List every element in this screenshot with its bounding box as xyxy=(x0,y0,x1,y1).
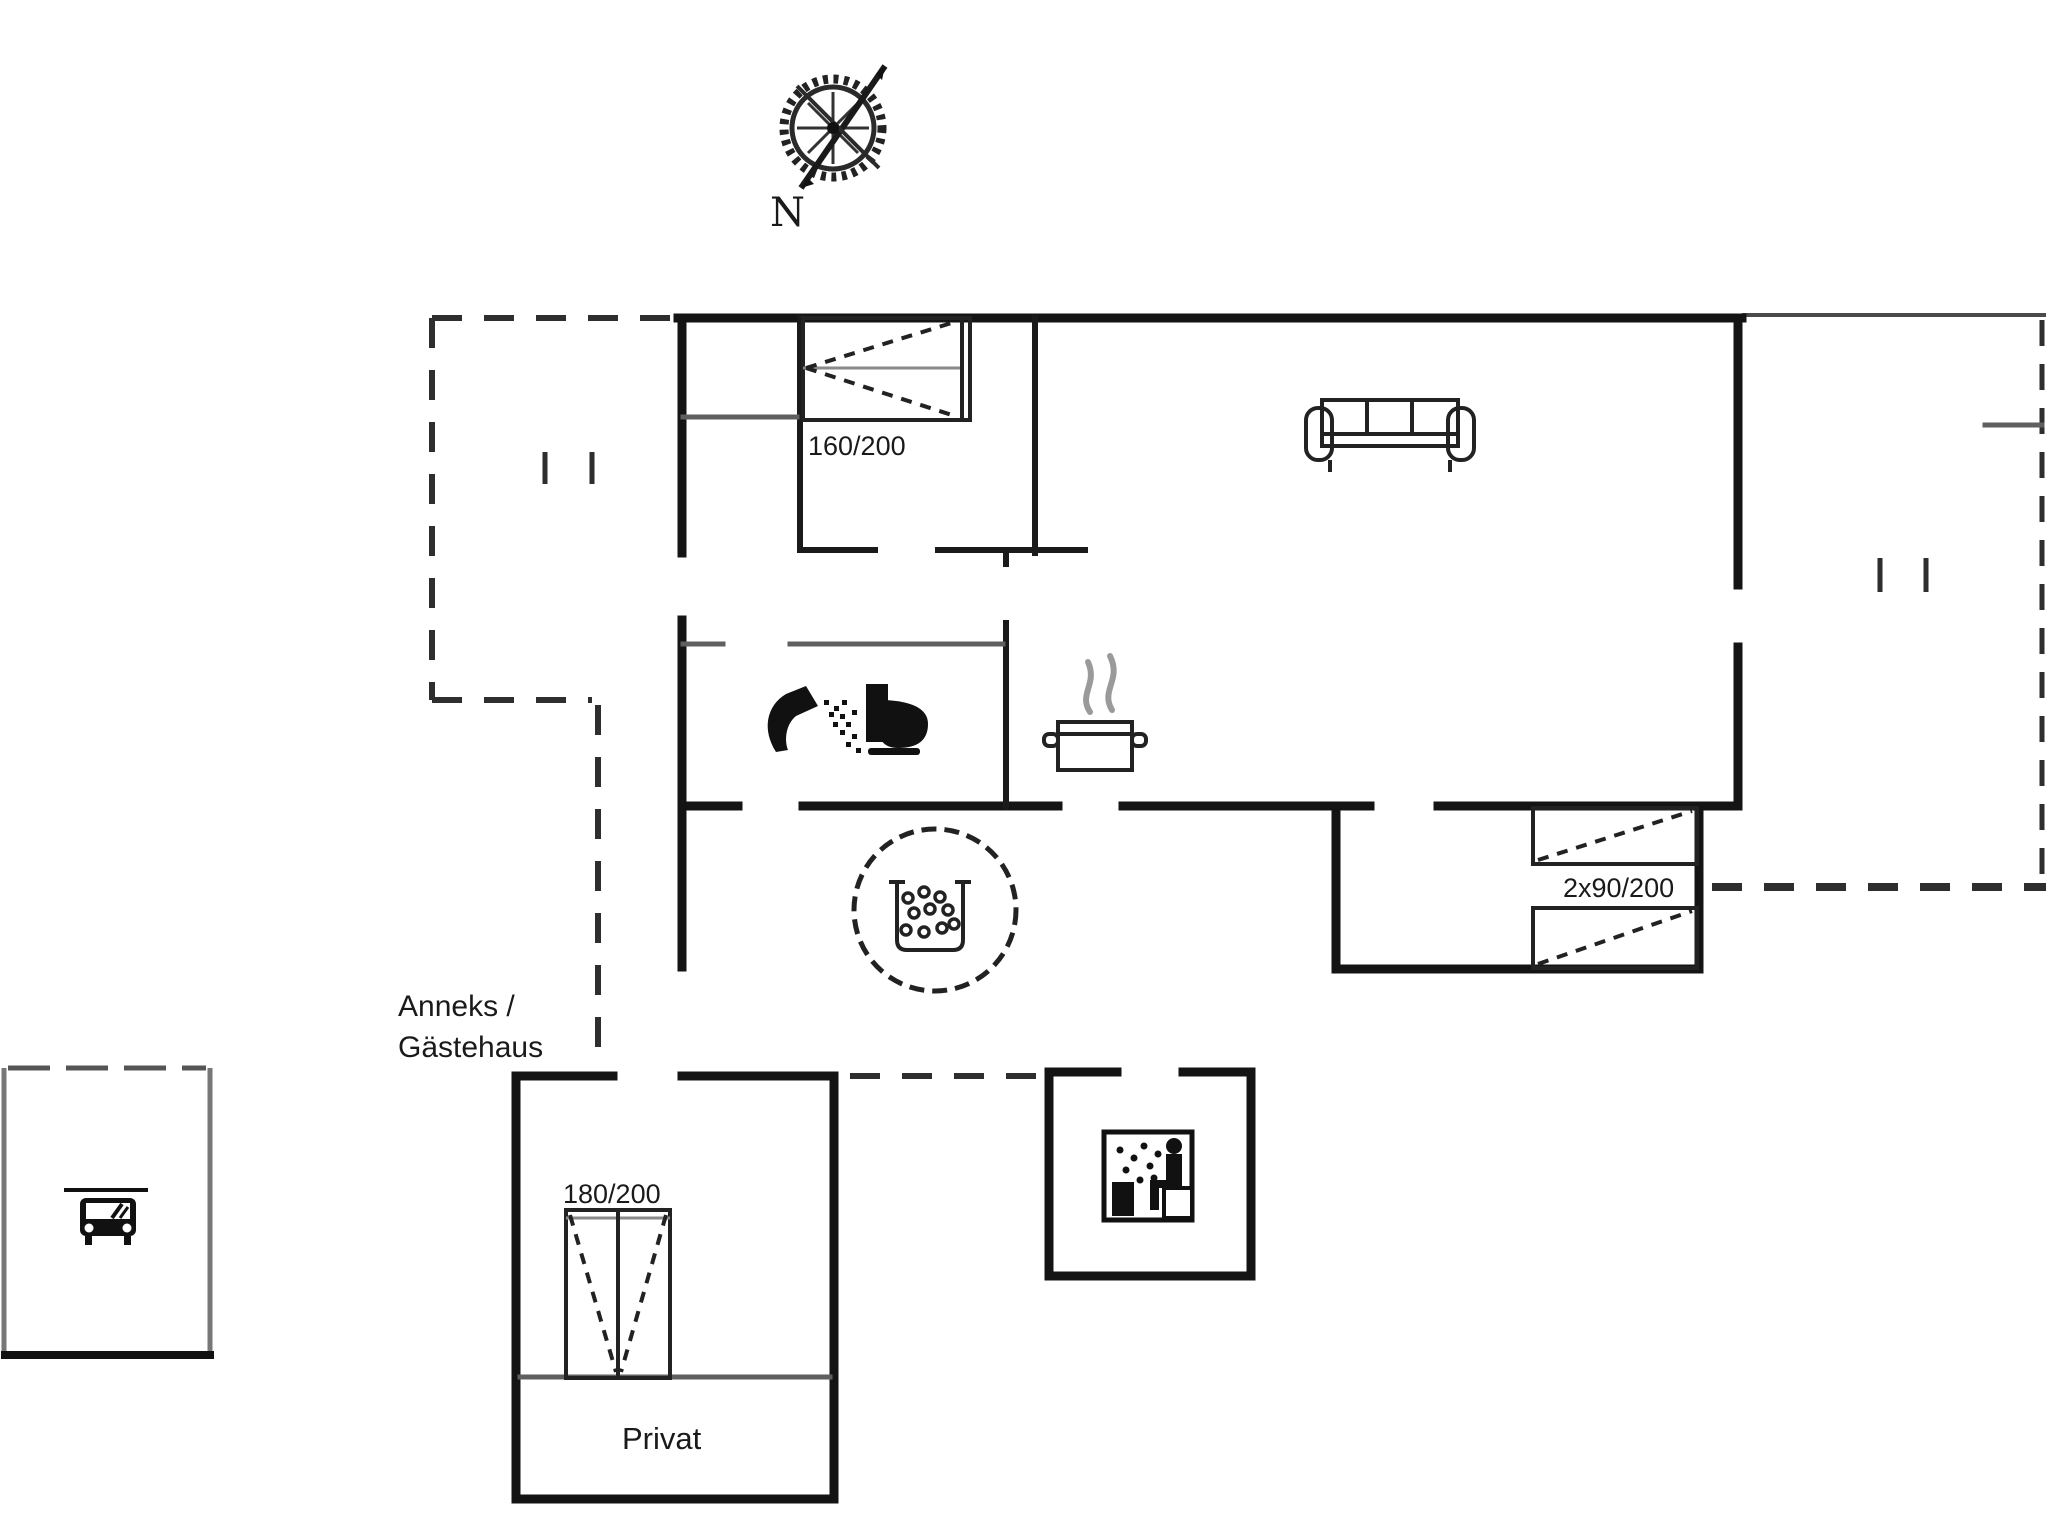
whirlpool-bubbles-icon xyxy=(854,829,1016,991)
bedroom-bed-size-label: 160/200 xyxy=(808,431,906,461)
annex-name-line2: Gästehaus xyxy=(398,1031,543,1064)
annex-double-bed-icon xyxy=(566,1210,670,1378)
floorplan-page: N xyxy=(0,0,2048,1536)
bunk-bed-size-label: 2x90/200 xyxy=(1563,873,1674,903)
sofa-icon xyxy=(1306,400,1474,472)
floorplan-drawing: N xyxy=(0,0,2048,1536)
annex-bed-size-label: 180/200 xyxy=(563,1179,661,1209)
right-terrace-outline xyxy=(1712,315,2046,888)
annex-name-line1: Anneks / xyxy=(398,990,515,1023)
toilet-icon xyxy=(866,684,928,755)
steaming-pot-icon xyxy=(1044,656,1146,770)
annex-private-label: Privat xyxy=(622,1421,702,1456)
compass-rose-icon: N xyxy=(770,66,885,236)
shower-icon xyxy=(768,686,861,753)
left-terrace-outline xyxy=(432,318,674,700)
north-label: N xyxy=(770,190,805,236)
sauna-person-icon xyxy=(1104,1132,1192,1220)
car-icon xyxy=(64,1190,148,1245)
double-bed-icon xyxy=(803,318,970,420)
